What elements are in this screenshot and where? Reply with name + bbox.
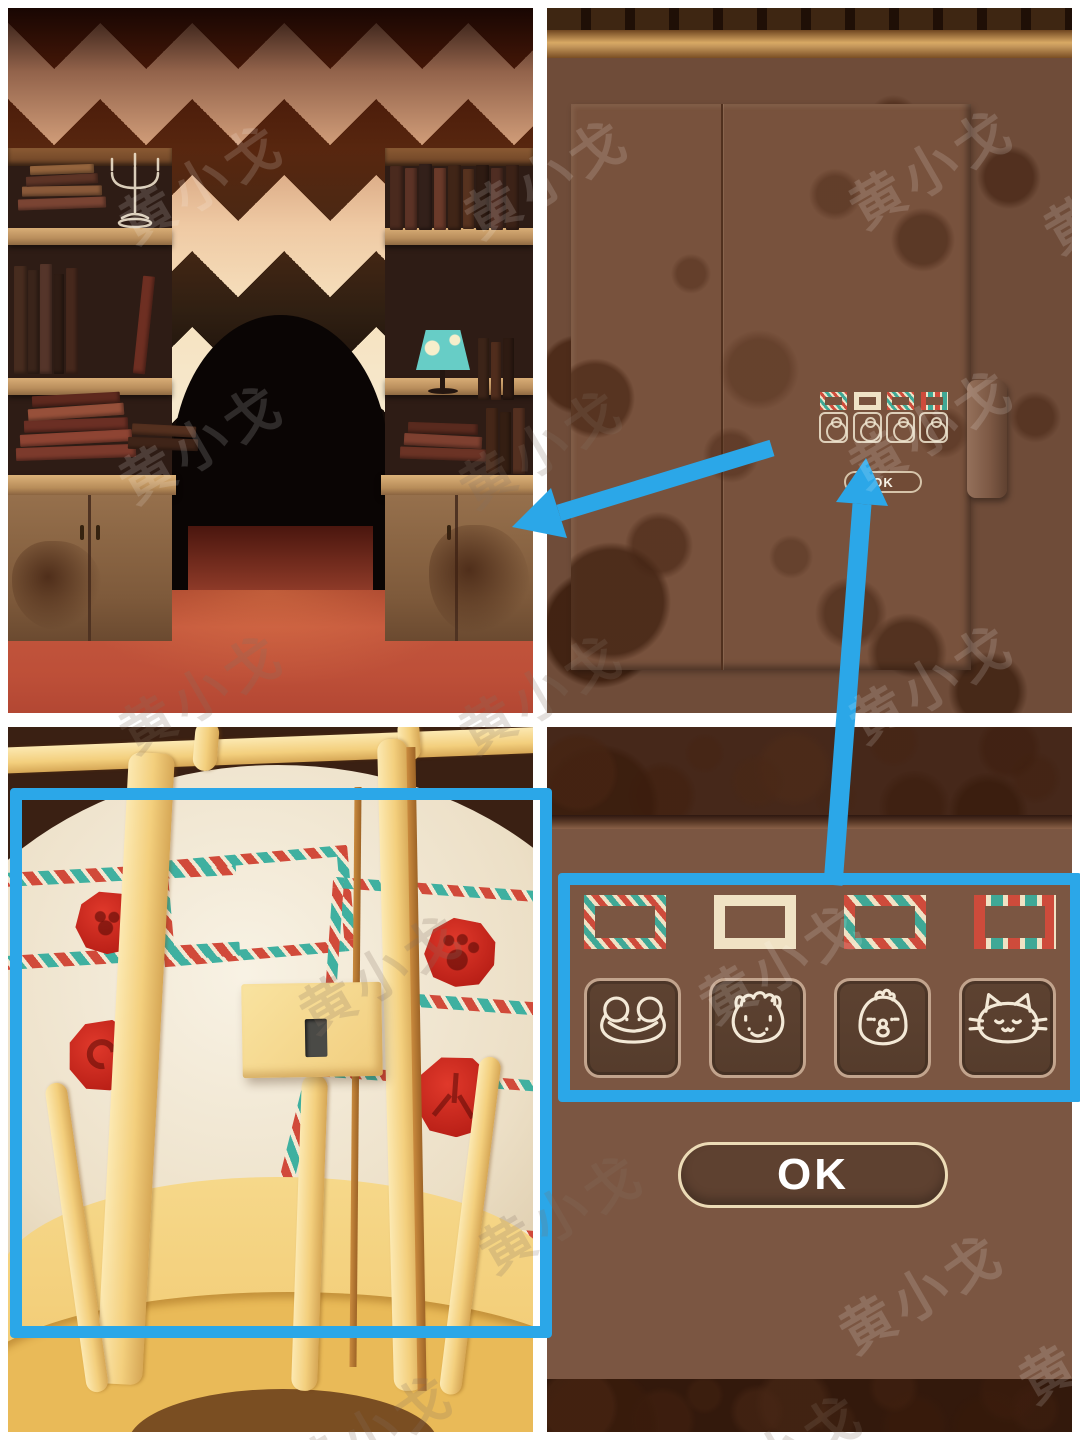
book bbox=[506, 165, 519, 230]
walkthrough-montage: OK bbox=[0, 0, 1080, 1440]
arch-inner-floor bbox=[188, 526, 373, 590]
cat-button[interactable] bbox=[959, 978, 1056, 1078]
rust-texture bbox=[571, 104, 971, 670]
confirm-label: OK bbox=[872, 475, 894, 490]
book bbox=[390, 166, 403, 230]
stamp-button-3[interactable] bbox=[886, 412, 915, 443]
stamp-puzzle-panel bbox=[570, 885, 1070, 1090]
envelope-frame-row bbox=[584, 895, 1056, 949]
panel-ridge bbox=[547, 815, 1072, 829]
cat-icon bbox=[964, 984, 1052, 1072]
book bbox=[54, 274, 64, 374]
book bbox=[486, 408, 498, 474]
rust-patch bbox=[12, 541, 102, 631]
envelope-frame-diagonal-striped-wide[interactable] bbox=[844, 895, 926, 949]
book bbox=[434, 168, 446, 230]
book bbox=[476, 165, 489, 230]
candelabra-icon bbox=[100, 152, 170, 234]
cabinet-handle-small bbox=[80, 525, 84, 540]
shelf-counter bbox=[381, 475, 533, 495]
scene-rusty-cabinet: OK bbox=[547, 8, 1072, 713]
frog-button[interactable] bbox=[584, 978, 681, 1078]
stamp-button-4[interactable] bbox=[919, 412, 948, 443]
cabinet-door[interactable] bbox=[571, 104, 971, 670]
stamp-slot-2[interactable] bbox=[854, 392, 881, 410]
stamp-button-1[interactable] bbox=[819, 412, 848, 443]
shelf-board bbox=[385, 228, 533, 245]
shelf-counter bbox=[8, 475, 176, 495]
confirm-button-small[interactable]: OK bbox=[844, 471, 922, 493]
scene-cage-envelopes bbox=[8, 727, 533, 1432]
panel-top-band bbox=[547, 727, 1072, 815]
book bbox=[419, 164, 432, 230]
chick-icon bbox=[839, 984, 927, 1072]
envelope-frame-diagonal-striped[interactable] bbox=[584, 895, 666, 949]
book bbox=[478, 338, 489, 400]
book bbox=[491, 342, 501, 400]
confirm-label: OK bbox=[777, 1150, 849, 1200]
envelope-frame-solid[interactable] bbox=[714, 895, 796, 949]
book bbox=[405, 168, 417, 230]
rust-texture bbox=[547, 727, 1072, 815]
panel-bottom-band bbox=[547, 1379, 1072, 1432]
cabinet-doors-left[interactable] bbox=[8, 495, 172, 641]
book bbox=[500, 412, 511, 474]
book bbox=[40, 264, 52, 374]
confirm-button[interactable]: OK bbox=[678, 1142, 948, 1208]
table-lamp-stand bbox=[440, 370, 445, 390]
rust-patch bbox=[429, 525, 529, 637]
book bbox=[503, 338, 514, 400]
book bbox=[463, 169, 474, 229]
keyhole-slot[interactable] bbox=[305, 1019, 328, 1057]
book bbox=[491, 168, 503, 230]
cabinet-handle[interactable] bbox=[967, 380, 1007, 498]
scene-stamp-puzzle: OK bbox=[547, 727, 1072, 1432]
book bbox=[22, 185, 102, 196]
chick-button[interactable] bbox=[834, 978, 931, 1078]
rust-texture bbox=[547, 1379, 1072, 1432]
frog-icon bbox=[589, 984, 677, 1072]
book bbox=[28, 270, 39, 374]
book bbox=[128, 437, 198, 451]
cabinet-doors-right[interactable] bbox=[385, 495, 533, 641]
animal-button-row bbox=[584, 978, 1056, 1078]
horse-button[interactable] bbox=[709, 978, 806, 1078]
cabinet-handle-small bbox=[96, 525, 100, 540]
cage-lock-panel[interactable] bbox=[241, 982, 383, 1078]
shelf-gap-above bbox=[547, 8, 1072, 30]
shelf-carved-top bbox=[385, 148, 533, 166]
horse-icon bbox=[714, 984, 802, 1072]
book bbox=[448, 165, 461, 230]
seal-imprint bbox=[432, 926, 487, 978]
stamp-slot-4[interactable] bbox=[921, 392, 948, 410]
stamp-slot-3[interactable] bbox=[887, 392, 914, 410]
envelope-frame-block-striped[interactable] bbox=[974, 895, 1056, 949]
book bbox=[14, 266, 27, 374]
book bbox=[513, 408, 525, 474]
book bbox=[66, 268, 78, 374]
stamp-button-2[interactable] bbox=[853, 412, 882, 443]
scene-checkered-room bbox=[8, 8, 533, 713]
stamp-slot-1[interactable] bbox=[820, 392, 847, 410]
table-lamp-shade bbox=[416, 330, 470, 370]
wood-molding bbox=[547, 30, 1072, 58]
seal-imprint bbox=[432, 1093, 452, 1116]
table-lamp-base bbox=[428, 388, 458, 394]
